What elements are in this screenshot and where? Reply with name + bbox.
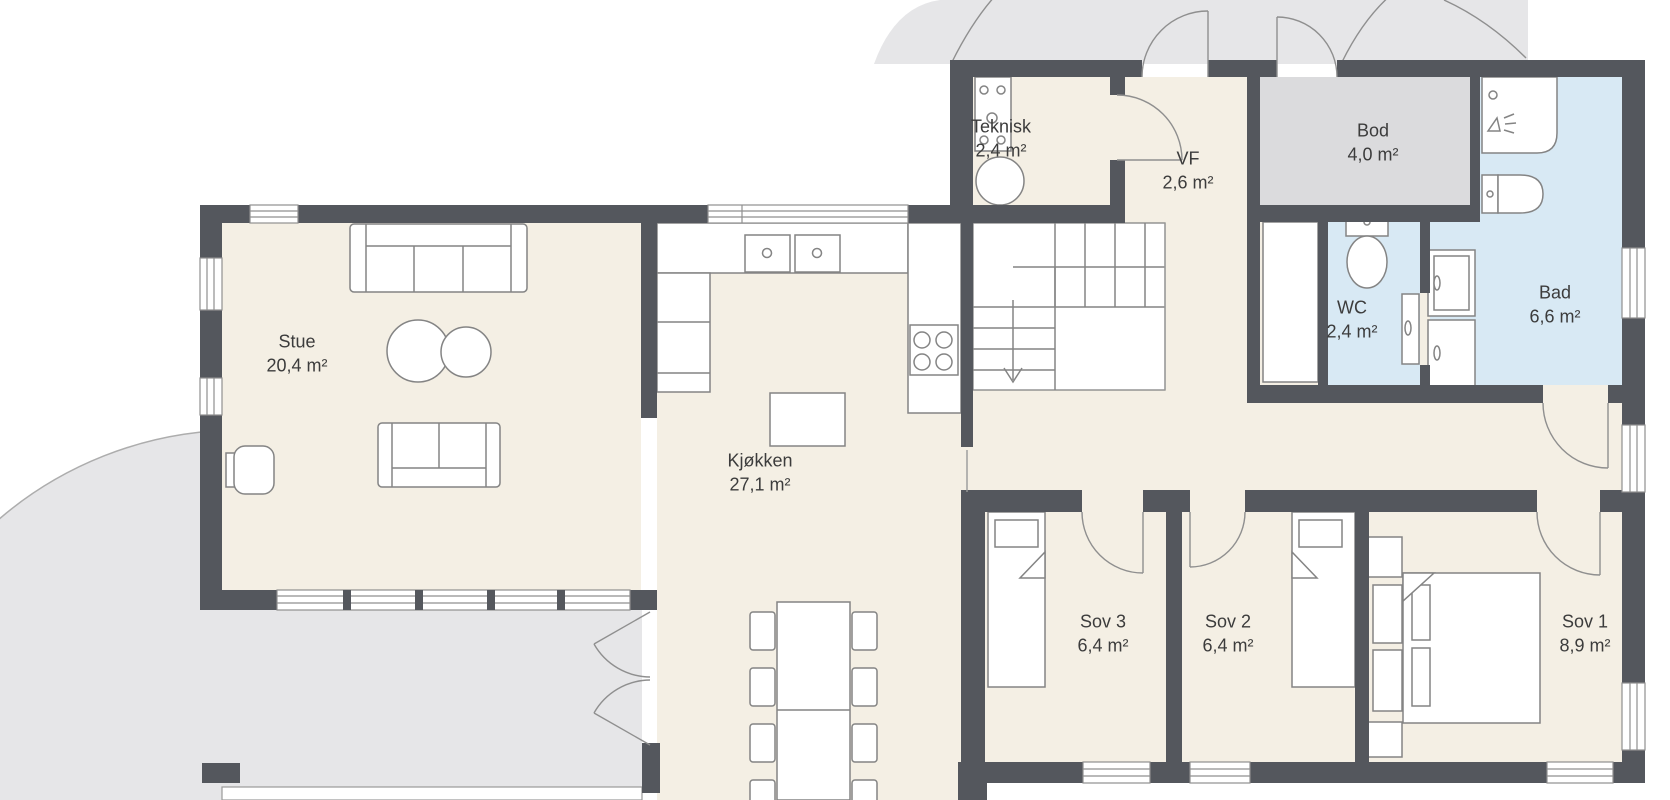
coffee-table [441, 327, 491, 377]
door-handle-icon [1434, 276, 1440, 290]
door-handle-icon [1405, 321, 1411, 335]
window [1622, 248, 1645, 318]
chair [750, 668, 775, 706]
pillow [995, 520, 1038, 547]
window [1190, 762, 1250, 783]
shower-icon [1482, 77, 1557, 153]
window [1622, 683, 1645, 750]
terrace-step [222, 787, 642, 800]
floor-plan-drawing [0, 0, 1670, 800]
window [1547, 762, 1613, 783]
water-heater-icon [976, 157, 1024, 205]
chair [750, 780, 775, 800]
bed-single [1292, 512, 1355, 687]
pillow [1299, 520, 1342, 547]
chair [852, 668, 877, 706]
nightstand [1366, 722, 1402, 757]
chair [852, 780, 877, 800]
chair [852, 612, 877, 650]
chair [750, 612, 775, 650]
pillow [1412, 585, 1430, 640]
closet [1263, 222, 1318, 382]
chair [852, 724, 877, 762]
window-band [277, 590, 630, 610]
outdoor-entry-yard [874, 0, 1528, 64]
window [1083, 762, 1150, 783]
door-handle-icon [1434, 346, 1440, 360]
nightstand [1373, 585, 1402, 643]
window [708, 205, 908, 223]
armchair [234, 446, 274, 494]
coffee-table [387, 320, 449, 382]
sofa [350, 224, 527, 292]
window [1622, 425, 1645, 492]
bed-single [988, 512, 1045, 687]
dining-table [777, 602, 850, 800]
kitchen-island [770, 393, 845, 446]
window [250, 205, 298, 223]
pillow [1412, 648, 1430, 706]
terrace [222, 600, 642, 800]
stairs [973, 223, 1165, 390]
floor-plan: Stue20,4 m²Kjøkken27,1 m²Teknisk2,4 m²VF… [0, 0, 1670, 800]
kitchen-counter-left [657, 273, 710, 392]
nightstand [1366, 537, 1402, 577]
chair [750, 724, 775, 762]
nightstand [1373, 650, 1402, 711]
kitchen-counter-right [908, 223, 961, 413]
toilet-icon [1482, 175, 1498, 213]
window [200, 378, 222, 415]
window [200, 258, 222, 310]
room-floor-bod [1257, 77, 1470, 205]
bed-double [1403, 573, 1540, 723]
